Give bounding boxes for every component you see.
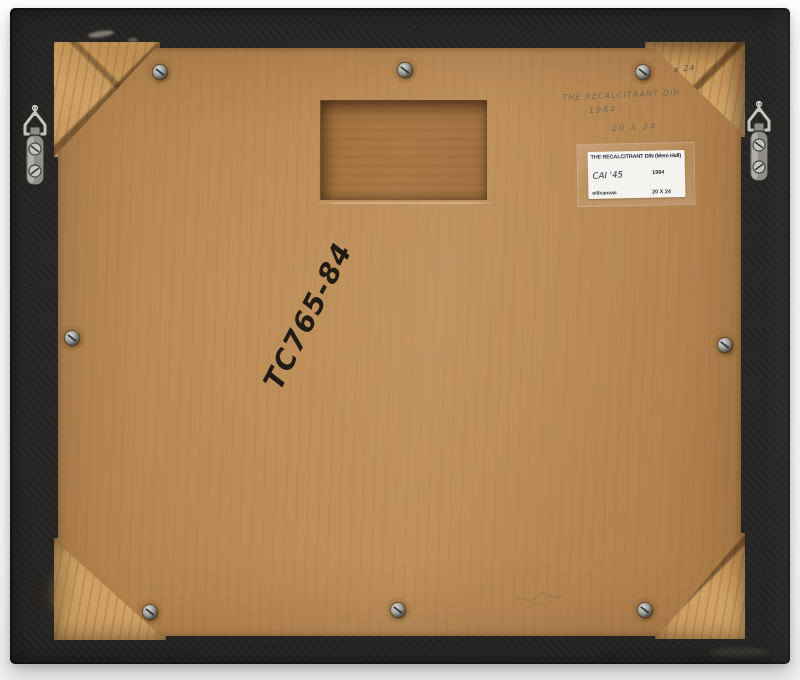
cutout-window [320,100,487,200]
screw [380,592,416,628]
frame-scuff [710,648,770,656]
picture-frame: THE RECALCITRANT DIN 1984 20 X 24 THE RE… [10,8,790,664]
label-dimensions: 20 X 24 [652,189,671,195]
backing-board: THE RECALCITRANT DIN 1984 20 X 24 THE RE… [58,48,741,636]
screw-head-icon [718,338,732,352]
inventory-code-text: TC765-84 [257,237,359,395]
screw [625,54,661,90]
screw-head-icon [65,331,79,345]
frame-scuff [128,38,138,42]
label-accession-handwritten: CAI '45 [592,169,623,181]
screw [627,592,663,628]
label-title: THE RECALCITRANT DIN (Mem Hall) [591,153,683,160]
photo-backdrop: THE RECALCITRANT DIN 1984 20 X 24 THE RE… [0,0,800,680]
label-year: 1984 [652,170,664,176]
screw [142,54,178,90]
d-ring-hanger-left [18,104,52,196]
pencil-inscription: THE RECALCITRANT DIN 1984 20 X 24 [562,87,714,137]
frame-scuff [88,29,115,39]
screw [707,327,743,363]
artwork-label-content: THE RECALCITRANT DIN (Mem Hall) CAI '45 … [591,153,684,196]
screw-head-icon [638,603,652,617]
screw-head-icon [636,65,650,79]
screw [54,320,90,356]
d-ring-hanger-right [742,100,776,192]
pencil-dimensions: 20 X 24 [612,120,714,134]
pencil-title: THE RECALCITRANT DIN [562,87,712,103]
screw-head-icon [398,63,412,77]
screw-head-icon [143,605,157,619]
faint-scribble [508,583,572,613]
screw-head-icon [153,65,167,79]
pencil-year: 1984 [589,101,713,116]
screw-head-icon [391,603,405,617]
label-medium: oil/canvas [592,190,617,196]
artwork-label: THE RECALCITRANT DIN (Mem Hall) CAI '45 … [588,150,686,199]
screw [387,52,423,88]
